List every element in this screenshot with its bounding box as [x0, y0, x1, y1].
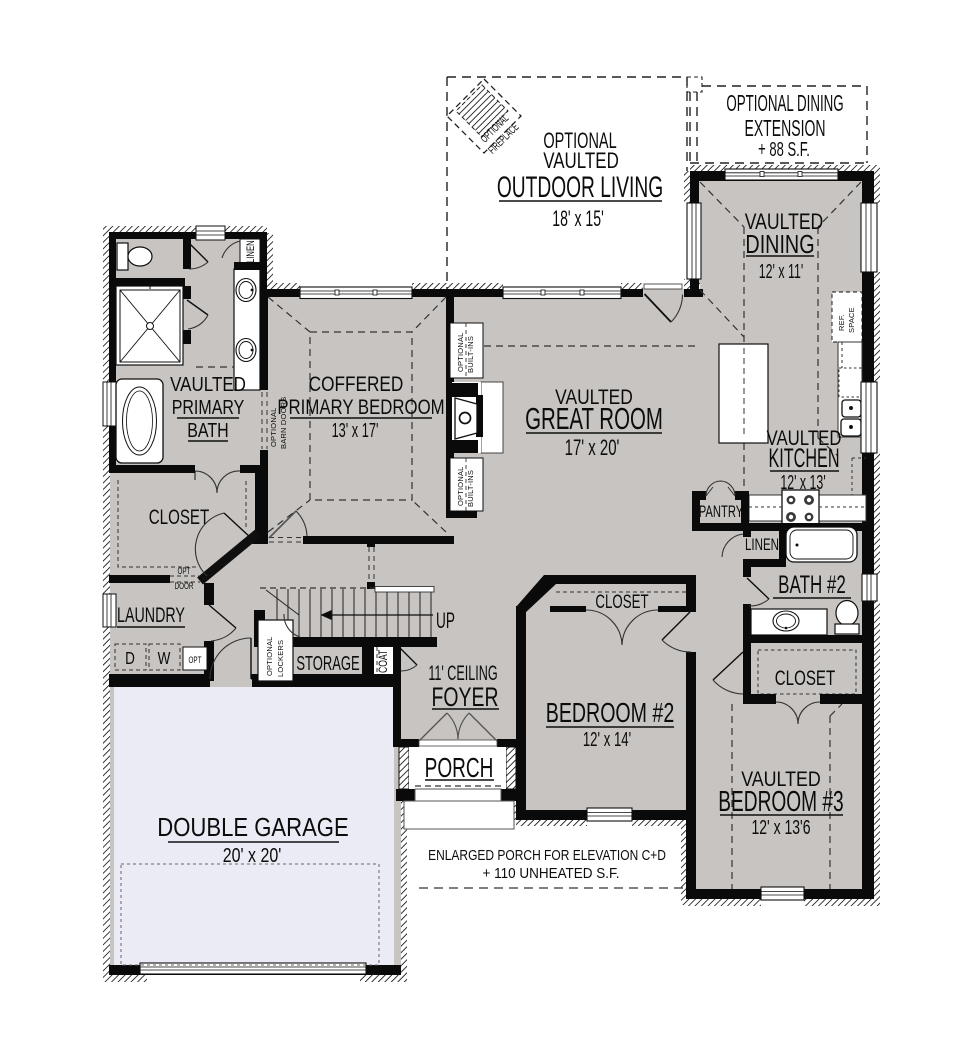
svg-text:ENLARGED PORCH FOR ELEVATION C: ENLARGED PORCH FOR ELEVATION C+D: [428, 847, 666, 864]
svg-text:SPACE: SPACE: [847, 307, 856, 333]
svg-text:FOYER: FOYER: [432, 682, 499, 712]
svg-text:OPTIONAL: OPTIONAL: [265, 636, 274, 676]
svg-text:OPTIONAL: OPTIONAL: [456, 332, 465, 372]
svg-text:12' x 11': 12' x 11': [759, 260, 803, 283]
svg-text:BUILT-INS: BUILT-INS: [466, 470, 475, 507]
svg-text:CLOSET: CLOSET: [595, 592, 648, 613]
svg-text:LOCKERS: LOCKERS: [276, 640, 285, 677]
svg-text:12' x 13': 12' x 13': [780, 471, 825, 494]
svg-text:BEDROOM #3: BEDROOM #3: [718, 786, 843, 818]
svg-text:20' x 20': 20' x 20': [223, 844, 282, 866]
svg-text:BATH #2: BATH #2: [778, 571, 846, 599]
svg-text:DOUBLE GARAGE: DOUBLE GARAGE: [157, 813, 348, 842]
svg-text:STORAGE: STORAGE: [296, 652, 359, 675]
svg-text:12' x 13'6: 12' x 13'6: [751, 815, 810, 838]
svg-text:OUTDOOR LIVING: OUTDOOR LIVING: [497, 171, 663, 204]
svg-text:COAT: COAT: [378, 649, 391, 673]
svg-text:OPTIONAL: OPTIONAL: [456, 466, 465, 506]
svg-text:REF.: REF.: [837, 314, 846, 331]
svg-text:DOOR: DOOR: [175, 581, 194, 591]
svg-text:BATH: BATH: [187, 419, 228, 441]
svg-text:PRIMARY: PRIMARY: [172, 396, 245, 418]
svg-text:PRIMARY BEDROOM: PRIMARY BEDROOM: [277, 396, 444, 419]
svg-text:BUILT-INS: BUILT-INS: [466, 336, 475, 373]
svg-text:D: D: [125, 649, 135, 668]
svg-text:PANTRY: PANTRY: [699, 503, 744, 522]
svg-text:OPT: OPT: [178, 566, 191, 576]
svg-text:LINEN: LINEN: [245, 240, 258, 263]
svg-text:+ 110 UNHEATED S.F.: + 110 UNHEATED S.F.: [483, 865, 620, 882]
svg-text:12' x 14': 12' x 14': [583, 728, 631, 750]
svg-text:W: W: [158, 649, 171, 668]
svg-text:18' x 15': 18' x 15': [552, 206, 604, 231]
svg-text:KITCHEN: KITCHEN: [768, 443, 839, 473]
svg-text:UP: UP: [436, 608, 455, 633]
svg-text:GREAT ROOM: GREAT ROOM: [525, 401, 663, 436]
svg-text:17' x 20': 17' x 20': [565, 435, 620, 460]
svg-text:CLOSET: CLOSET: [149, 504, 209, 528]
svg-text:+ 88 S.F.: + 88 S.F.: [758, 138, 810, 161]
svg-text:13' x 17': 13' x 17': [332, 419, 379, 442]
svg-text:OPTIONAL DINING: OPTIONAL DINING: [726, 90, 843, 116]
svg-text:LINEN: LINEN: [745, 536, 779, 555]
svg-text:CLOSET: CLOSET: [775, 665, 835, 689]
svg-text:DINING: DINING: [745, 229, 814, 258]
svg-text:VAULTED: VAULTED: [170, 373, 246, 396]
svg-text:BEDROOM #2: BEDROOM #2: [546, 698, 674, 729]
svg-text:OPT: OPT: [189, 655, 202, 665]
svg-text:LAUNDRY: LAUNDRY: [117, 603, 185, 626]
svg-text:COFFERED: COFFERED: [309, 374, 404, 397]
